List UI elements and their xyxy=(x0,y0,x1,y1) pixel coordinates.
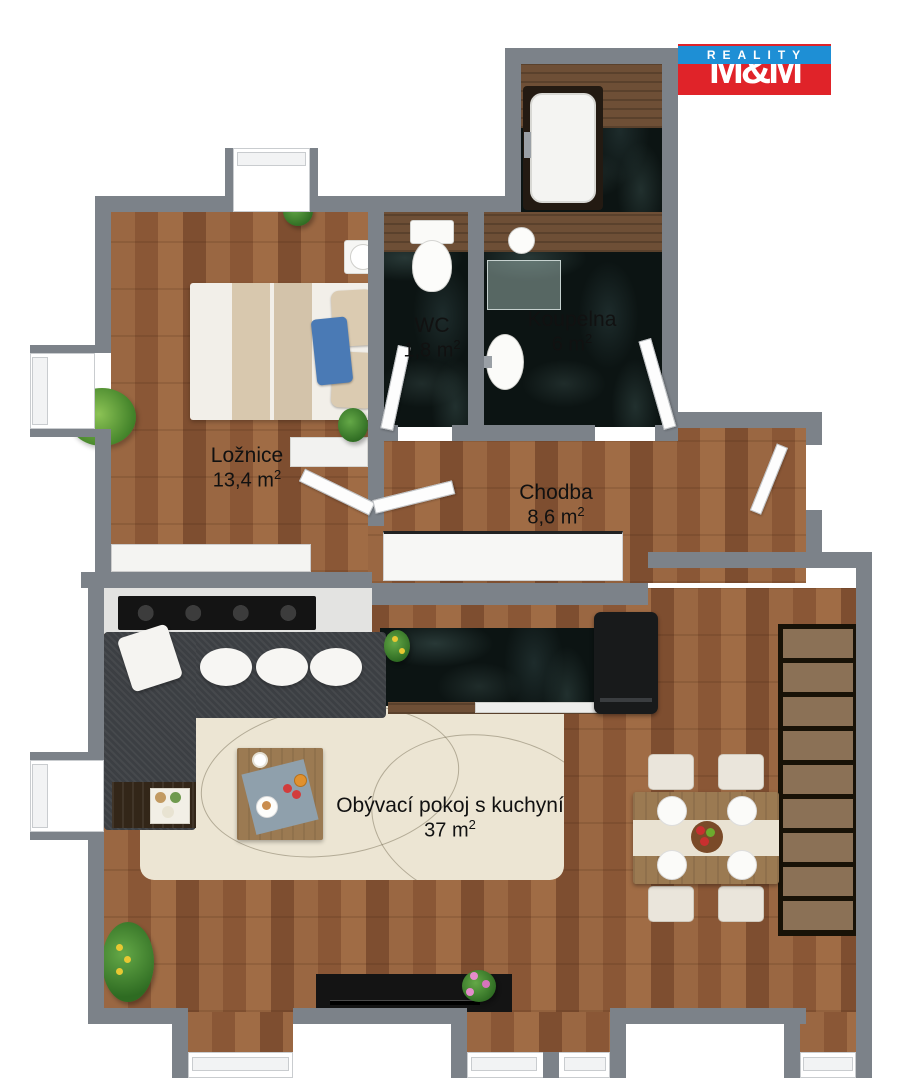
wall xyxy=(784,1008,800,1078)
yellow-flowers xyxy=(116,968,123,975)
bathtub-faucet xyxy=(524,132,531,158)
wall xyxy=(678,412,822,428)
window-sash xyxy=(564,1057,606,1071)
kitchen-island-shelf xyxy=(475,702,597,713)
sofa-cushion xyxy=(310,648,362,686)
wall xyxy=(95,196,233,212)
room-name: WC xyxy=(392,314,472,338)
room-area: 1,8 m2 xyxy=(392,338,472,363)
window-sash xyxy=(192,1057,289,1071)
wall xyxy=(88,588,104,754)
wall xyxy=(30,832,104,840)
bed-runner xyxy=(274,283,312,420)
window-sash xyxy=(471,1057,537,1071)
room-label-chodba: Chodba 8,6 m2 xyxy=(486,481,626,530)
plant xyxy=(338,408,368,442)
plant-pink-flowers xyxy=(462,970,496,1002)
room-name: Chodba xyxy=(486,481,626,505)
cooktop xyxy=(118,596,316,630)
wall xyxy=(610,1008,626,1078)
yellow-flowers xyxy=(399,648,405,654)
toilet-bowl xyxy=(412,240,452,292)
room-area-value: 6 m xyxy=(552,334,585,356)
dinner-plate xyxy=(727,796,757,826)
room-area: 13,4 m2 xyxy=(157,468,337,493)
wall xyxy=(30,752,104,760)
dinner-plate xyxy=(657,796,687,826)
dinner-plate xyxy=(657,850,687,880)
sofa-cushion xyxy=(256,648,308,686)
door-threshold xyxy=(595,427,655,441)
bathtub xyxy=(530,93,596,203)
hallway-wardrobe xyxy=(383,531,623,581)
room-area: 6 m2 xyxy=(512,332,632,357)
yellow-flowers xyxy=(116,944,123,951)
kitchen-plant xyxy=(384,630,410,662)
window-sash xyxy=(803,1057,853,1071)
sofa-cushion xyxy=(200,648,252,686)
room-area-exp: 2 xyxy=(577,504,584,519)
shower-head xyxy=(508,227,535,254)
wall xyxy=(610,1008,806,1024)
bed-pillow-blue xyxy=(311,316,354,385)
small-plate xyxy=(170,792,181,803)
wall xyxy=(505,48,521,212)
yellow-flowers xyxy=(124,956,131,963)
wall xyxy=(81,572,372,588)
door-threshold xyxy=(398,427,452,441)
door-threshold xyxy=(806,445,822,510)
room-label-obyvaci: Obývací pokoj s kuchyní 37 m2 xyxy=(300,794,600,843)
berries xyxy=(283,784,292,793)
wall xyxy=(30,429,100,437)
room-area-value: 13,4 m xyxy=(213,470,274,492)
wall xyxy=(372,583,648,605)
pink-flowers xyxy=(482,980,490,988)
bedroom-wardrobe xyxy=(111,544,311,572)
dining-chair xyxy=(718,754,764,790)
pink-flowers xyxy=(470,972,478,980)
stairs xyxy=(778,624,858,936)
wall xyxy=(368,196,384,526)
room-area-value: 8,6 m xyxy=(527,507,577,529)
pink-flowers xyxy=(466,988,474,996)
refrigerator-handle xyxy=(600,698,652,702)
logo-reality-text: REALITY xyxy=(678,46,831,64)
wall xyxy=(451,1008,467,1078)
floor-plan: Ložnice 13,4 m2 WC 1,8 m2 Koupelna 6 m2 … xyxy=(0,0,911,1080)
wall xyxy=(172,1008,188,1078)
kitchen-island xyxy=(380,628,600,706)
bay-floor-left xyxy=(188,1012,293,1056)
yellow-flowers xyxy=(392,636,398,642)
dining-chair xyxy=(648,754,694,790)
room-label-wc: WC 1,8 m2 xyxy=(392,314,472,363)
wall xyxy=(30,345,100,353)
bay-floor-middle xyxy=(467,1012,610,1056)
room-area-exp: 2 xyxy=(469,817,476,832)
wall xyxy=(310,148,318,212)
sink-faucet xyxy=(484,356,492,368)
wall xyxy=(662,48,678,428)
wall xyxy=(293,1008,467,1024)
fruit xyxy=(700,837,709,846)
fruit xyxy=(696,826,705,835)
croissant xyxy=(262,801,271,810)
wall xyxy=(225,148,233,212)
window-sash xyxy=(237,152,306,166)
room-label-loznice: Ložnice 13,4 m2 xyxy=(157,444,337,493)
drink xyxy=(294,774,307,787)
wall xyxy=(648,552,872,568)
wall xyxy=(95,196,111,353)
room-area-exp: 2 xyxy=(585,331,592,346)
dining-chair xyxy=(648,886,694,922)
room-area: 37 m2 xyxy=(300,818,600,843)
small-plate xyxy=(162,806,174,818)
bay-floor-right xyxy=(800,1012,856,1056)
room-area-exp: 2 xyxy=(274,467,281,482)
dinner-plate xyxy=(727,850,757,880)
room-name: Obývací pokoj s kuchyní xyxy=(300,794,600,818)
bed-runner xyxy=(232,283,270,420)
fruit xyxy=(706,828,715,837)
room-area: 8,6 m2 xyxy=(486,505,626,530)
room-area-value: 37 m xyxy=(424,820,468,842)
small-plate xyxy=(155,792,166,803)
coffee-cup xyxy=(252,752,268,768)
dining-chair xyxy=(718,886,764,922)
wall xyxy=(452,425,595,441)
window-sash xyxy=(32,357,48,425)
room-area-value: 1,8 m xyxy=(403,340,453,362)
wall xyxy=(88,832,104,1012)
room-area-exp: 2 xyxy=(453,337,460,352)
wall xyxy=(95,429,111,578)
shower-glass xyxy=(487,260,561,310)
wall xyxy=(505,48,678,64)
window-sash xyxy=(32,764,48,828)
window-mullion xyxy=(543,1052,559,1078)
tv-sideboard-detail xyxy=(330,1000,480,1005)
wall xyxy=(856,552,872,1078)
room-name: Koupelna xyxy=(512,308,632,332)
room-name: Ložnice xyxy=(157,444,337,468)
room-label-koupelna: Koupelna 6 m2 xyxy=(512,308,632,357)
